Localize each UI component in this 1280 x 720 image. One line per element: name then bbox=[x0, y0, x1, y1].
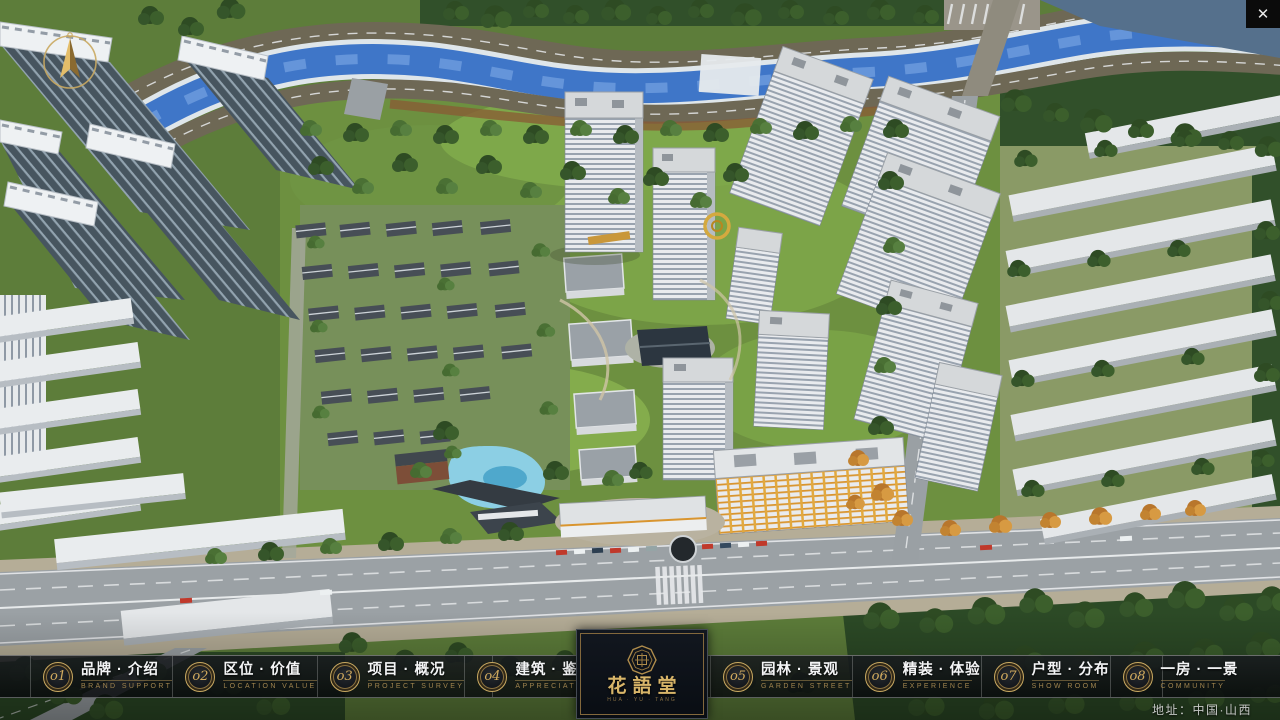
seal-emblem-icon bbox=[627, 645, 657, 675]
menu-item-garden-landscape[interactable]: o5 园林 · 景观 GARDEN STREET bbox=[710, 656, 852, 697]
menu-item-decoration-experience[interactable]: o6 精装 · 体验 EXPERIENCE bbox=[852, 656, 981, 697]
menu-item-brand-intro[interactable]: o1 品牌 · 介绍 BRAND SUPPORT bbox=[30, 656, 172, 697]
menu-number-badge: o5 bbox=[723, 662, 753, 692]
menu-item-subtitle: GARDEN STREET bbox=[761, 680, 852, 690]
menu-number-badge: o7 bbox=[994, 662, 1024, 692]
menu-item-subtitle: COMMUNITY bbox=[1161, 680, 1226, 690]
menu-item-label: 精装 · 体验 bbox=[903, 663, 981, 678]
menu-item-location-value[interactable]: o2 区位 · 价值 LOCATION VALUE bbox=[172, 656, 316, 697]
menu-item-label: 项目 · 概况 bbox=[368, 663, 465, 678]
menu-item-subtitle: LOCATION VALUE bbox=[223, 680, 316, 690]
menu-item-label: 一房 · 一景 bbox=[1161, 663, 1239, 678]
brand-caption: HUA · YU · TANG bbox=[607, 698, 676, 703]
masterplan-3d-view[interactable] bbox=[0, 0, 1280, 720]
menu-item-subtitle: EXPERIENCE bbox=[903, 680, 972, 690]
menu-item-subtitle: PROJECT SURVEY bbox=[368, 680, 465, 690]
menu-item-label: 园林 · 景观 bbox=[761, 663, 852, 678]
menu-item-subtitle: BRAND SUPPORT bbox=[81, 680, 172, 690]
menu-group-left: o1 品牌 · 介绍 BRAND SUPPORT o2 区位 · 价值 LOCA… bbox=[30, 656, 493, 697]
close-button[interactable]: ✕ bbox=[1246, 0, 1280, 28]
menu-number-badge: o1 bbox=[43, 662, 73, 692]
menu-item-project-survey[interactable]: o3 项目 · 概况 PROJECT SURVEY bbox=[317, 656, 465, 697]
menu-group-right: o5 园林 · 景观 GARDEN STREET o6 精装 · 体验 EXPE… bbox=[710, 656, 1163, 697]
menu-number-badge: o3 bbox=[330, 662, 360, 692]
project-address: 地址：中国·山西 bbox=[1152, 701, 1252, 718]
brand-logo-frame: 花語堂 HUA · YU · TANG bbox=[580, 633, 704, 715]
menu-item-label: 品牌 · 介绍 bbox=[81, 663, 172, 678]
menu-number-badge: o4 bbox=[477, 662, 507, 692]
menu-item-floorplan-distribution[interactable]: o7 户型 · 分布 SHOW ROOM bbox=[981, 656, 1110, 697]
menu-item-label: 户型 · 分布 bbox=[1032, 663, 1110, 678]
brand-logo-panel[interactable]: 花語堂 HUA · YU · TANG bbox=[576, 629, 708, 719]
menu-number-badge: o2 bbox=[185, 662, 215, 692]
menu-item-label: 区位 · 价值 bbox=[223, 663, 316, 678]
menu-number-badge: o8 bbox=[1123, 662, 1153, 692]
brand-name: 花語堂 bbox=[601, 677, 682, 696]
menu-item-room-view[interactable]: o8 一房 · 一景 COMMUNITY bbox=[1110, 656, 1239, 697]
presentation-stage: ✕ o1 品牌 · 介绍 BRAND SUPPORT o2 区位 · 价值 LO… bbox=[0, 0, 1280, 720]
menu-number-badge: o6 bbox=[865, 662, 895, 692]
menu-item-subtitle: SHOW ROOM bbox=[1032, 680, 1099, 690]
